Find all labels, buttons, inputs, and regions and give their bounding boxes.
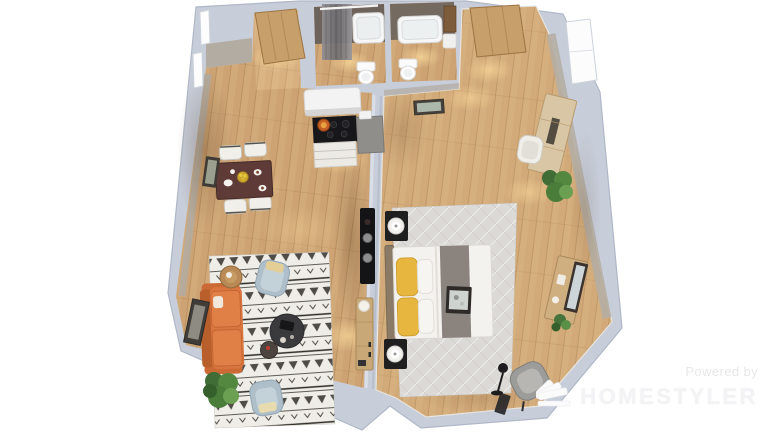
pillow-yellow-2 [397, 298, 419, 337]
apartment-3d-scene [0, 0, 768, 432]
counter-item [359, 111, 371, 120]
coffee-table [270, 314, 304, 348]
window-left-1 [200, 10, 210, 45]
kitchen-drawers [314, 141, 357, 167]
bath-cabinet [444, 6, 456, 32]
pot [317, 119, 330, 132]
toilet-right [399, 59, 417, 80]
sofa [199, 282, 244, 374]
bedroom-door [470, 5, 526, 57]
bathtub-left [352, 12, 384, 43]
sofa-throw-pillow [213, 296, 223, 308]
window-left-2 [193, 52, 203, 88]
sideboard [356, 298, 373, 370]
kitchen-counter [356, 116, 384, 153]
front-door [255, 9, 305, 64]
bathtub-right [398, 15, 443, 44]
nightstand-top [385, 211, 408, 241]
side-table [261, 342, 278, 359]
shower-curtain [322, 4, 352, 60]
pillow-yellow-1 [396, 258, 418, 297]
bath-vanity [443, 34, 456, 48]
floorplan-render: Powered by HOMESTYLER [0, 0, 768, 432]
bedroom-picture-frame [414, 99, 445, 115]
bed-tray [446, 286, 472, 314]
media-console [360, 208, 375, 284]
pillow-white-2 [418, 299, 434, 333]
bed [385, 243, 493, 342]
sideboard-lamp [359, 301, 370, 312]
pillow-white-1 [417, 259, 433, 293]
toilet-left [357, 62, 375, 84]
armchair-bottom [248, 378, 284, 417]
vanity-chair [516, 134, 544, 165]
living-plant [203, 372, 239, 408]
nightstand-bottom [384, 339, 407, 369]
wood-tray-table [220, 266, 242, 288]
